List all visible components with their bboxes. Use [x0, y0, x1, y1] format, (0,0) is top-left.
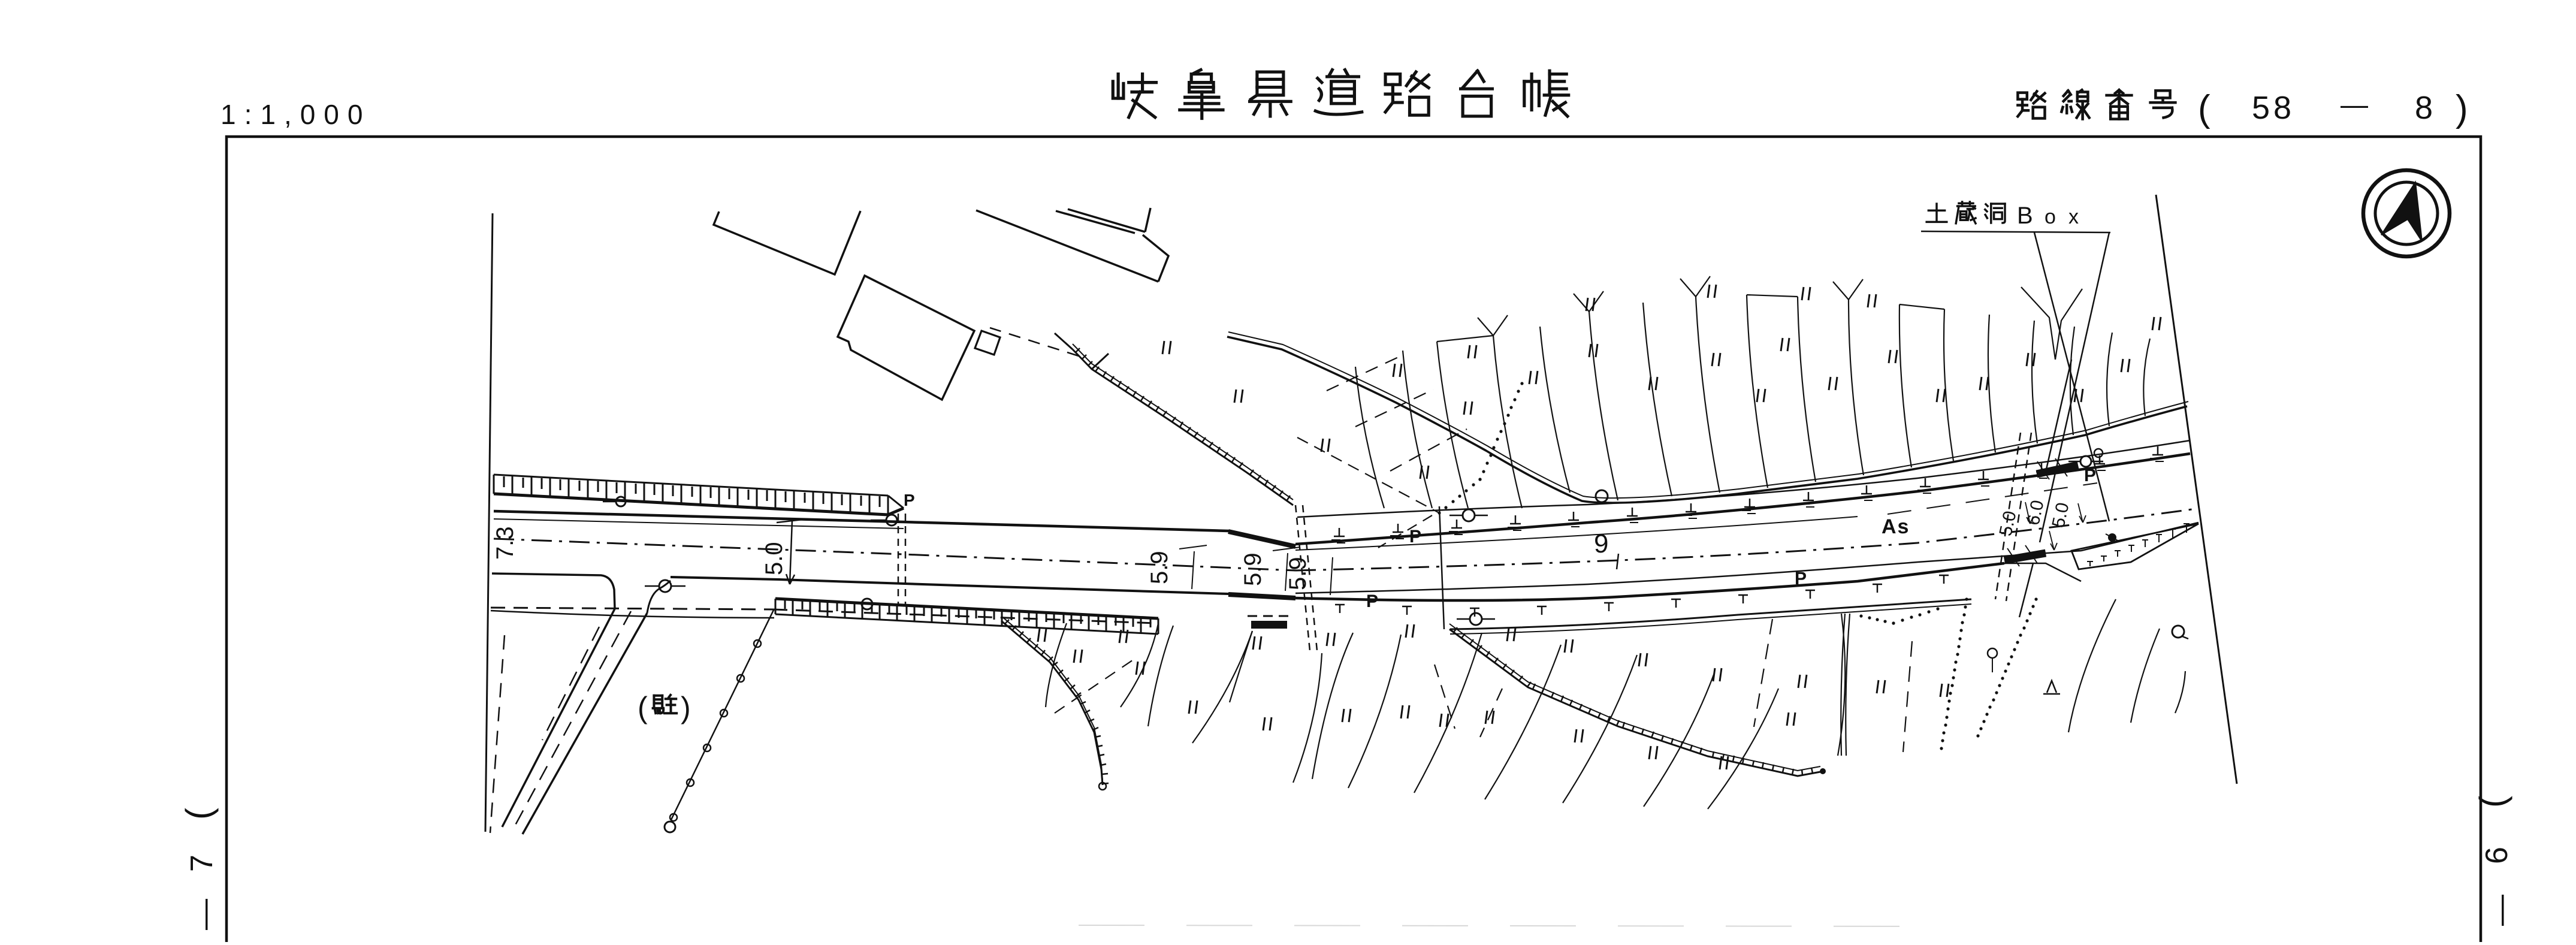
svg-text:(: (	[2472, 796, 2512, 808]
svg-text:—: —	[2483, 895, 2518, 926]
svg-text:—: —	[2341, 89, 2368, 120]
svg-text:58: 58	[2252, 90, 2295, 126]
svg-text:P: P	[2084, 466, 2096, 485]
svg-text:(: (	[638, 691, 648, 724]
svg-text:x: x	[2068, 206, 2079, 228]
svg-text:P: P	[904, 491, 915, 509]
svg-text:(: (	[179, 808, 219, 820]
svg-text:9: 9	[1594, 529, 1608, 558]
svg-text:5.9: 5.9	[1240, 552, 1266, 586]
svg-text:o: o	[2045, 206, 2056, 228]
svg-text:8: 8	[2415, 90, 2433, 126]
svg-text:5.0: 5.0	[761, 542, 787, 575]
svg-text:7: 7	[185, 855, 219, 872]
svg-text:P: P	[1409, 527, 1421, 547]
svg-text:As: As	[1882, 515, 1910, 538]
svg-text:5.9: 5.9	[1285, 557, 1311, 590]
svg-text:7.3: 7.3	[492, 526, 518, 560]
svg-text:B: B	[2017, 203, 2033, 229]
svg-text:—: —	[187, 899, 222, 930]
svg-text:5.9: 5.9	[1146, 551, 1173, 584]
svg-text:P: P	[1366, 591, 1378, 611]
svg-text:P: P	[1795, 569, 1807, 588]
svg-text:6: 6	[2480, 847, 2514, 864]
svg-text:(: (	[2198, 88, 2210, 129]
svg-text:1:1,000: 1:1,000	[221, 99, 371, 130]
svg-text:): )	[2456, 88, 2468, 129]
svg-text:): )	[681, 691, 691, 724]
